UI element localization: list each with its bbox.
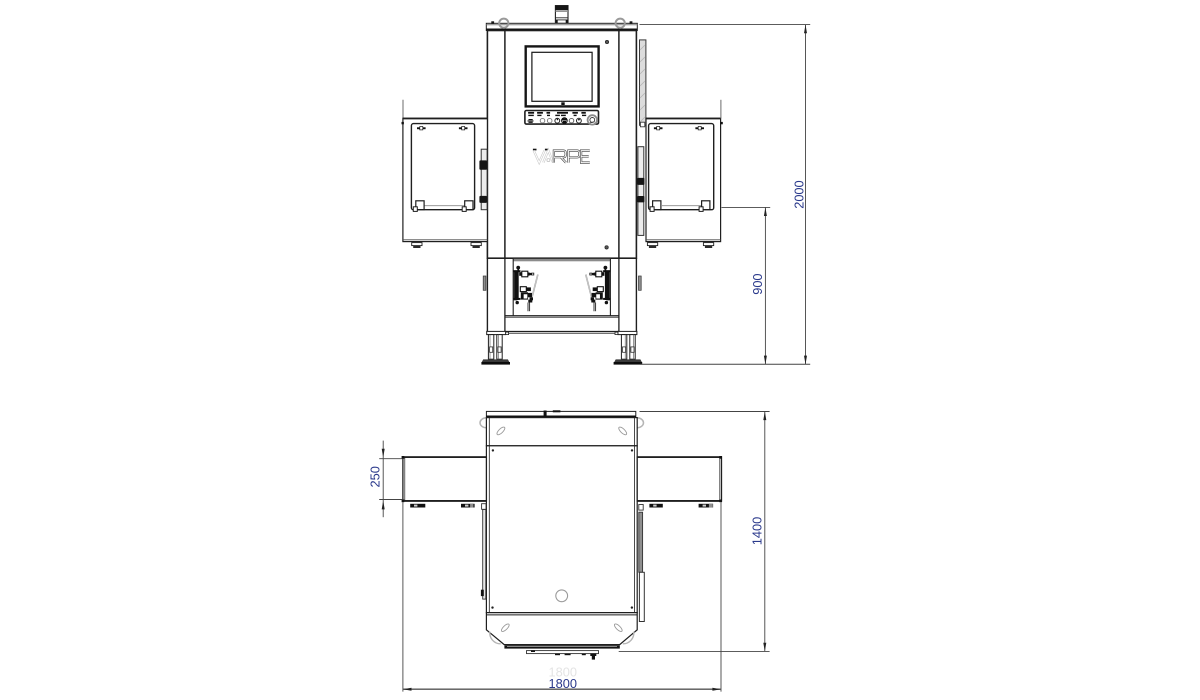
svg-text:1800: 1800 (549, 676, 577, 691)
svg-text:900: 900 (750, 273, 765, 294)
svg-text:1400: 1400 (750, 517, 765, 545)
svg-text:2000: 2000 (791, 180, 806, 208)
svg-text:250: 250 (368, 466, 383, 487)
